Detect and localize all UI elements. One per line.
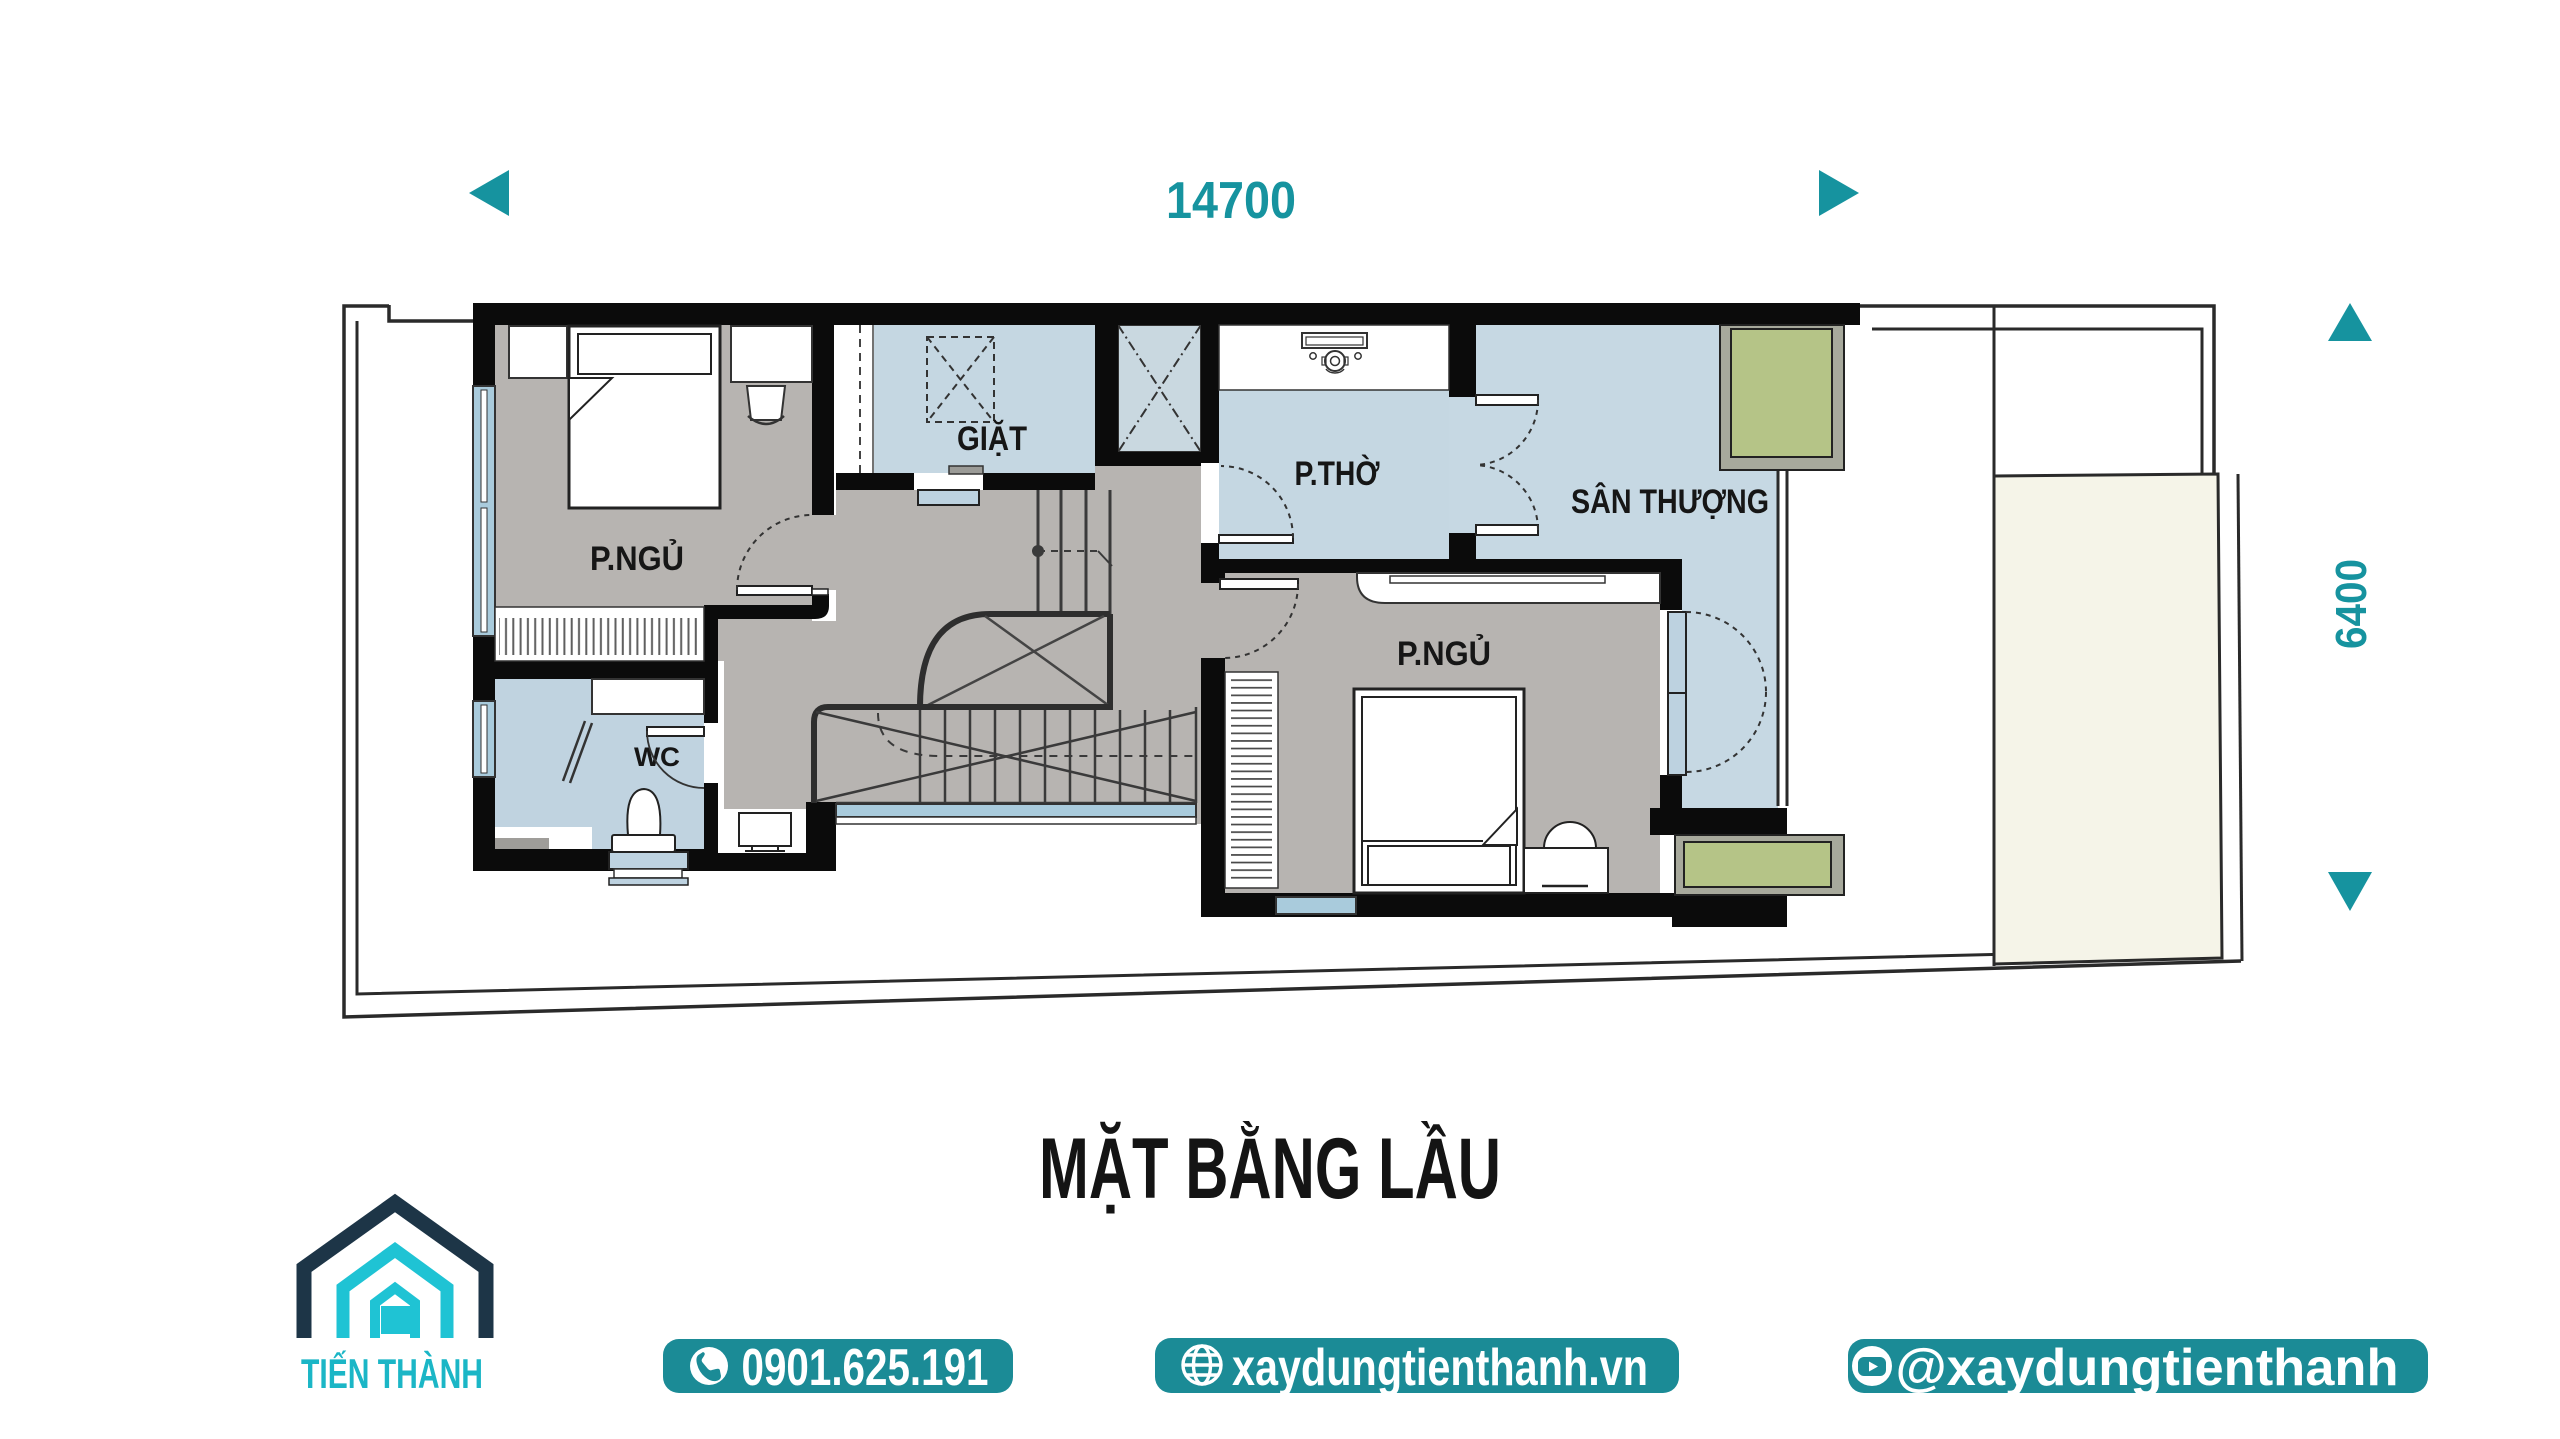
svg-text:TIẾN THÀNH: TIẾN THÀNH	[301, 1350, 483, 1397]
svg-text:@xaydungtienthanh: @xaydungtienthanh	[1896, 1339, 2399, 1397]
svg-text:P.NGỦ: P.NGỦ	[590, 540, 684, 578]
svg-text:P.NGỦ: P.NGỦ	[1397, 635, 1491, 673]
svg-text:WC: WC	[634, 742, 680, 772]
svg-text:MẶT BẰNG LẦU: MẶT BẰNG LẦU	[1039, 1121, 1501, 1217]
svg-text:14700: 14700	[1166, 172, 1296, 230]
svg-text:SÂN THƯỢNG: SÂN THƯỢNG	[1571, 483, 1769, 521]
svg-text:0901.625.191: 0901.625.191	[742, 1339, 989, 1397]
svg-text:P.THỜ: P.THỜ	[1295, 455, 1380, 493]
svg-text:GIẶT: GIẶT	[957, 420, 1027, 458]
svg-text:6400: 6400	[2327, 559, 2376, 649]
svg-text:xaydungtienthanh.vn: xaydungtienthanh.vn	[1232, 1339, 1648, 1397]
